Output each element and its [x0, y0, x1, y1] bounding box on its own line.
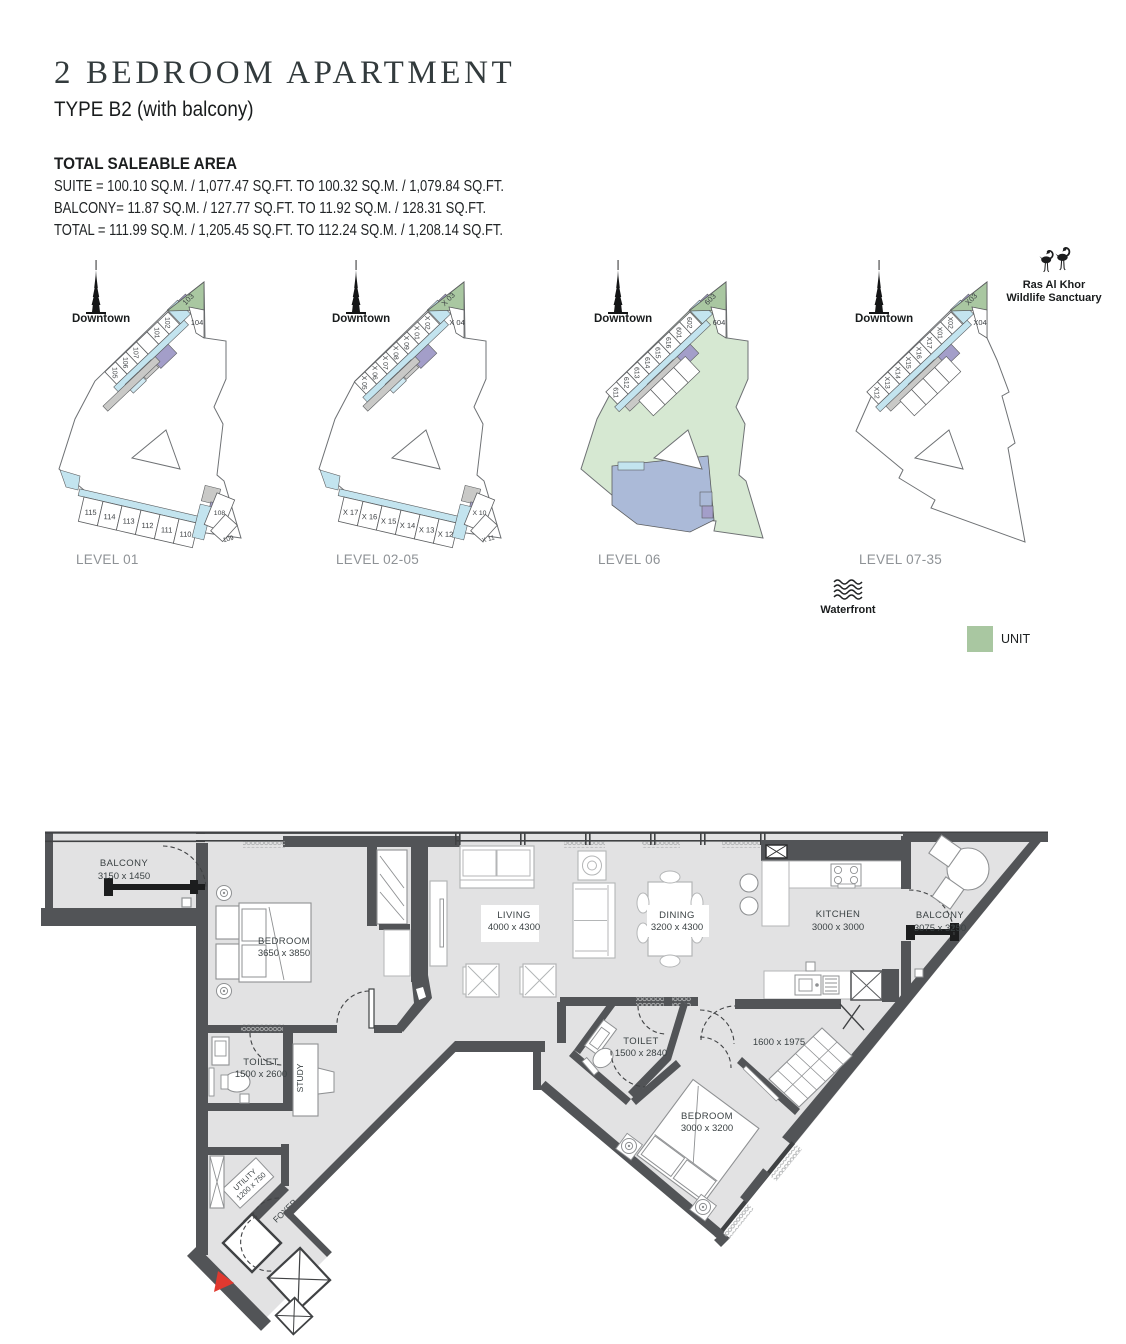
svg-text:X 04: X 04 [449, 318, 464, 327]
svg-text:LEVEL 07-35: LEVEL 07-35 [859, 552, 942, 567]
svg-text:X 16: X 16 [362, 512, 378, 521]
svg-text:Waterfront: Waterfront [820, 604, 876, 616]
svg-text:614: 614 [643, 357, 650, 369]
svg-text:110: 110 [179, 530, 191, 539]
svg-text:1500 x 2840: 1500 x 2840 [615, 1048, 667, 1059]
svg-text:X 15: X 15 [381, 517, 397, 526]
svg-text:Downtown: Downtown [855, 313, 913, 325]
svg-text:X 08: X 08 [391, 346, 398, 360]
svg-text:114: 114 [103, 512, 115, 521]
svg-text:3000 x 3200: 3000 x 3200 [681, 1123, 733, 1134]
svg-text:1500 x 2600: 1500 x 2600 [235, 1069, 287, 1080]
svg-text:X17: X17 [925, 337, 932, 349]
svg-text:Downtown: Downtown [332, 313, 390, 325]
svg-text:X 06: X 06 [370, 366, 377, 380]
svg-text:UNIT: UNIT [1001, 632, 1031, 646]
svg-text:Wildlife Sanctuary: Wildlife Sanctuary [1006, 292, 1102, 304]
svg-text:4000 x 4300: 4000 x 4300 [488, 922, 540, 933]
svg-text:112: 112 [141, 521, 153, 530]
svg-text:602: 602 [685, 317, 692, 329]
svg-text:X01: X01 [936, 327, 943, 339]
svg-text:Ras Al Khor: Ras Al Khor [1023, 279, 1086, 291]
svg-text:604: 604 [713, 318, 726, 327]
svg-text:615: 615 [654, 347, 661, 359]
svg-text:KITCHEN: KITCHEN [816, 909, 861, 920]
svg-text:X 01: X 01 [413, 326, 420, 340]
svg-text:LEVEL 02-05: LEVEL 02-05 [336, 552, 419, 567]
svg-text:Downtown: Downtown [594, 313, 652, 325]
svg-text:109: 109 [222, 535, 235, 545]
svg-text:101: 101 [153, 327, 160, 339]
svg-text:104: 104 [191, 318, 204, 327]
svg-text:DINING: DINING [659, 910, 695, 921]
svg-text:BEDROOM: BEDROOM [681, 1111, 733, 1122]
svg-text:616: 616 [664, 337, 671, 349]
svg-text:1600 x 1975: 1600 x 1975 [753, 1037, 805, 1048]
svg-text:105: 105 [110, 367, 117, 379]
svg-text:LEVEL 06: LEVEL 06 [598, 552, 661, 567]
svg-text:3200 x 4300: 3200 x 4300 [651, 922, 703, 933]
svg-text:X 05: X 05 [360, 376, 367, 390]
svg-text:X 09: X 09 [402, 336, 409, 350]
svg-text:X12: X12 [872, 387, 879, 399]
svg-text:X14: X14 [893, 367, 900, 379]
svg-text:613: 613 [632, 367, 639, 379]
svg-text:BALCONY: BALCONY [100, 858, 148, 869]
svg-text:TOILET: TOILET [243, 1057, 278, 1068]
svg-text:TOILET: TOILET [623, 1036, 658, 1047]
svg-text:Downtown: Downtown [72, 313, 130, 325]
svg-text:LEVEL 01: LEVEL 01 [76, 552, 139, 567]
svg-text:111: 111 [161, 525, 173, 534]
svg-text:X 13: X 13 [419, 525, 435, 534]
svg-text:3000 x 3000: 3000 x 3000 [812, 922, 864, 933]
svg-text:X13: X13 [883, 377, 890, 389]
svg-text:115: 115 [85, 508, 97, 517]
svg-text:BALCONY: BALCONY [916, 910, 964, 921]
svg-text:106: 106 [121, 357, 128, 369]
svg-text:612: 612 [622, 377, 629, 389]
svg-text:3075 x 3250: 3075 x 3250 [914, 923, 966, 934]
svg-text:X 14: X 14 [400, 521, 416, 530]
svg-text:X 12: X 12 [438, 530, 454, 539]
svg-text:X15: X15 [904, 357, 911, 369]
svg-text:611: 611 [611, 387, 618, 398]
svg-text:3650 x 3850: 3650 x 3850 [258, 948, 310, 959]
svg-text:X 02: X 02 [423, 316, 430, 330]
svg-text:3150 x 1450: 3150 x 1450 [98, 871, 150, 882]
svg-text:102: 102 [163, 317, 170, 329]
svg-text:X 07: X 07 [381, 356, 388, 370]
svg-text:LIVING: LIVING [497, 910, 531, 921]
svg-text:BEDROOM: BEDROOM [258, 936, 310, 947]
svg-text:STUDY: STUDY [295, 1063, 305, 1092]
svg-text:X02: X02 [946, 317, 953, 329]
svg-text:601: 601 [675, 327, 682, 339]
svg-text:X 17: X 17 [343, 508, 359, 517]
svg-text:113: 113 [123, 517, 135, 526]
svg-text:X16: X16 [915, 347, 922, 359]
svg-text:X04: X04 [973, 318, 986, 327]
svg-text:107: 107 [132, 347, 139, 359]
